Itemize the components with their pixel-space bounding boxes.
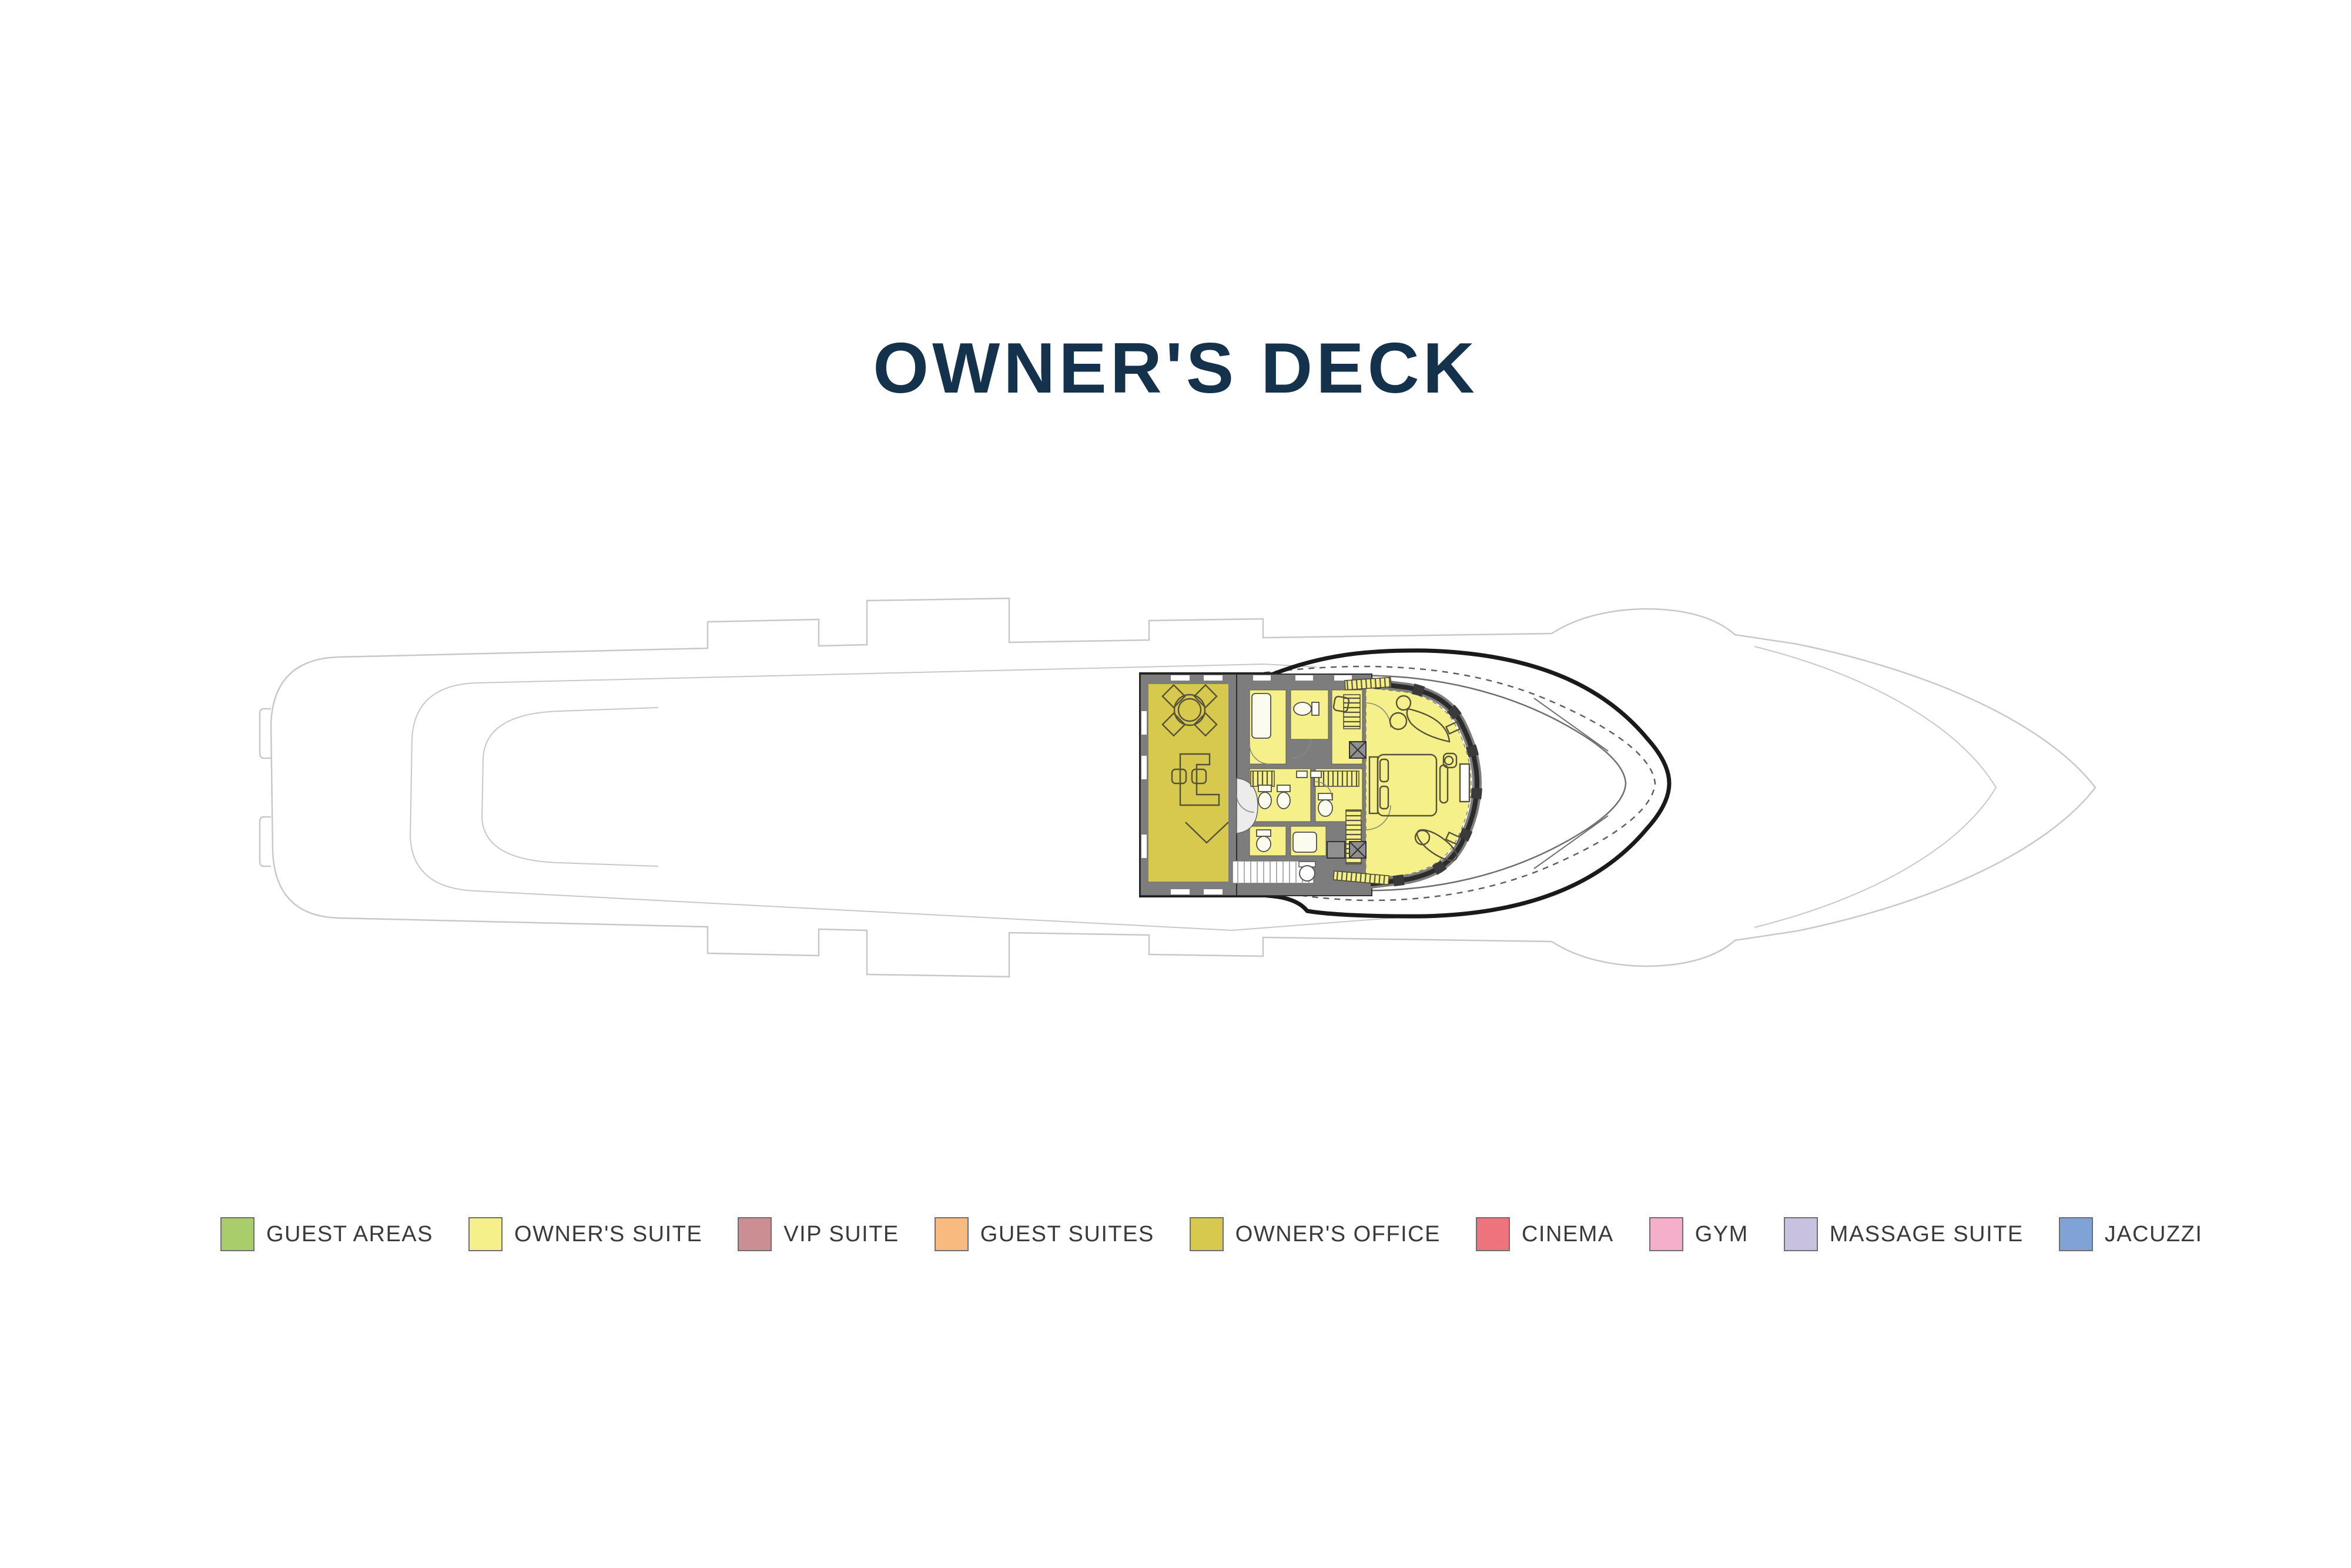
legend-swatch-jacuzzi — [2059, 1217, 2093, 1251]
legend-item-guest_suites: GUEST SUITES — [935, 1217, 1154, 1251]
legend-label-massage_suite: MASSAGE SUITE — [1830, 1222, 2024, 1247]
legend-label-owners_office: OWNER'S OFFICE — [1235, 1222, 1441, 1247]
bow-inner-line — [1754, 646, 1996, 927]
sink-left — [1297, 771, 1307, 778]
toilet-top-wc — [1294, 702, 1311, 715]
legend-label-vip_suite: VIP SUITE — [783, 1222, 899, 1247]
page: OWNER'S DECK — [0, 0, 2351, 1568]
wardrobe-mid-left — [1251, 771, 1274, 786]
legend-swatch-owners_office — [1190, 1217, 1224, 1251]
lower-cabin-bed — [1293, 832, 1317, 852]
legend-label-guest_suites: GUEST SUITES — [980, 1222, 1154, 1247]
legend-swatch-owners_suite — [468, 1217, 503, 1251]
legend-swatch-guest_suites — [935, 1217, 969, 1251]
sink-right — [1311, 771, 1321, 778]
toilet-lower-wc — [1257, 836, 1271, 852]
legend-label-gym: GYM — [1695, 1222, 1749, 1247]
legend-item-jacuzzi: JACUZZI — [2059, 1217, 2203, 1251]
legend-swatch-massage_suite — [1784, 1217, 1818, 1251]
windshield-mullion-bottom — [1534, 816, 1608, 869]
legend: GUEST AREASOWNER'S SUITEVIP SUITEGUEST S… — [220, 1217, 2202, 1251]
stair-newel — [1300, 866, 1315, 881]
legend-item-owners_suite: OWNER'S SUITE — [468, 1217, 702, 1251]
legend-label-cinema: CINEMA — [1522, 1222, 1614, 1247]
legend-label-owners_suite: OWNER'S SUITE — [514, 1222, 702, 1247]
legend-item-massage_suite: MASSAGE SUITE — [1784, 1217, 2024, 1251]
legend-item-cinema: CINEMA — [1476, 1217, 1614, 1251]
legend-swatch-gym — [1649, 1217, 1683, 1251]
legend-swatch-cinema — [1476, 1217, 1510, 1251]
stairs — [1233, 861, 1315, 883]
service-locker — [1327, 842, 1345, 858]
bidet-bath-right — [1277, 792, 1290, 809]
suite-wc-room — [1291, 690, 1328, 739]
legend-item-owners_office: OWNER'S OFFICE — [1190, 1217, 1441, 1251]
stern-inner-line — [482, 708, 658, 866]
toilet-bath-left — [1258, 792, 1271, 809]
tv-cabinet — [1460, 764, 1469, 802]
legend-item-guest_areas: GUEST AREAS — [220, 1217, 433, 1251]
legend-label-guest_areas: GUEST AREAS — [266, 1222, 433, 1247]
toilet-shower-room — [1318, 800, 1332, 816]
owners-office-floor — [1148, 684, 1228, 882]
legend-swatch-vip_suite — [738, 1217, 772, 1251]
legend-item-vip_suite: VIP SUITE — [738, 1217, 899, 1251]
deck-plan — [0, 0, 2351, 1568]
legend-label-jacuzzi: JACUZZI — [2105, 1222, 2203, 1247]
windshield-mullion-top — [1534, 698, 1608, 751]
legend-swatch-guest_areas — [220, 1217, 254, 1251]
stern-platform-tabs — [260, 709, 271, 866]
legend-item-gym: GYM — [1649, 1217, 1749, 1251]
cabin-bed — [1252, 693, 1271, 738]
